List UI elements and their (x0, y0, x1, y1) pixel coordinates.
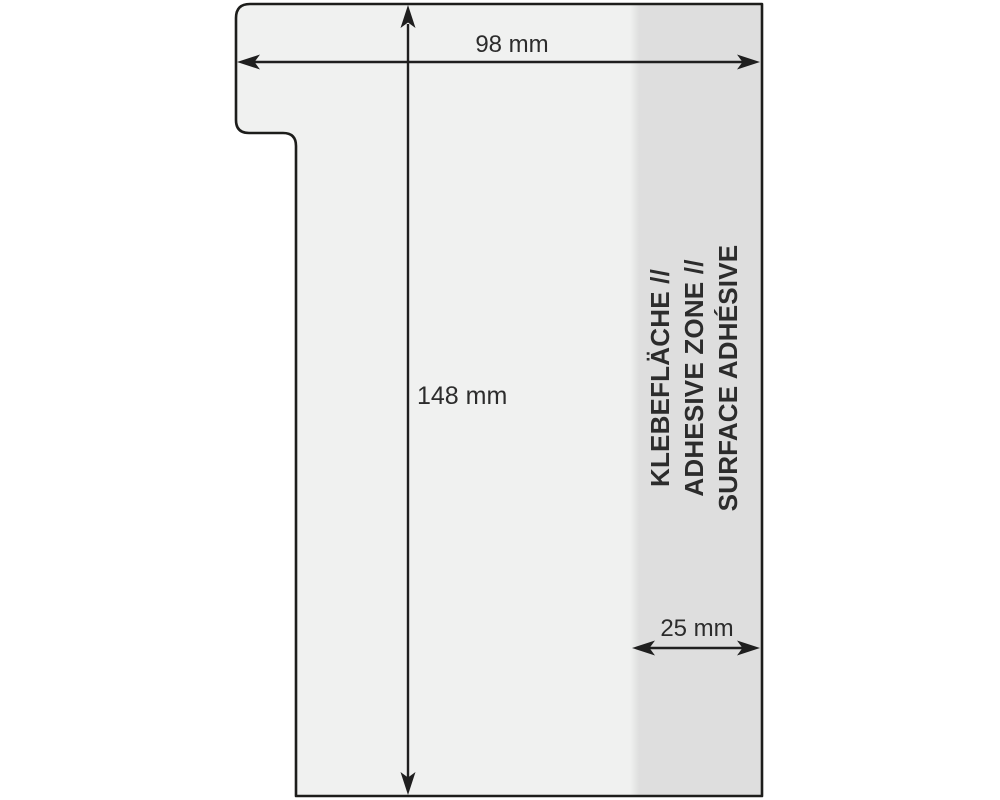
width-label: 98 mm (475, 32, 548, 58)
adhesive-zone-label: KLEBEFLÄCHE // ADHESIVE ZONE // SURFACE … (643, 245, 745, 512)
height-label: 148 mm (417, 383, 507, 411)
adhesive-zone-label-line2: ADHESIVE ZONE // (677, 245, 711, 512)
adhesive-zone-label-line1: KLEBEFLÄCHE // (643, 245, 677, 512)
adhesive-zone-label-line3: SURFACE ADHÉSIVE (711, 245, 745, 512)
pocket-dimension-diagram: 98 mm 148 mm 25 mm KLEBEFLÄCHE // ADHESI… (0, 0, 1000, 800)
adhesive-width-label: 25 mm (660, 616, 733, 642)
